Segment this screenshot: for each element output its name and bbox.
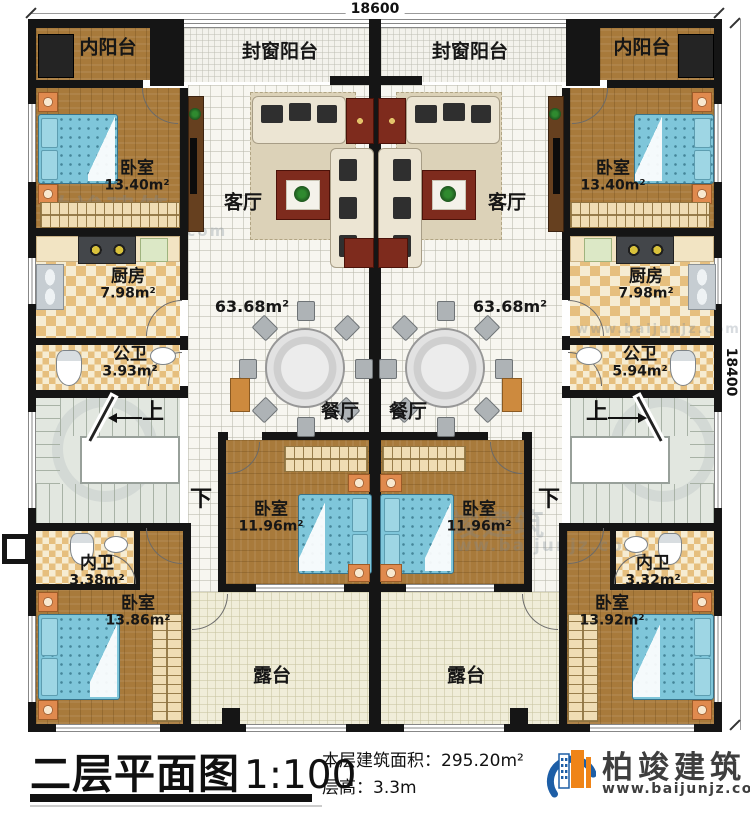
window <box>404 724 504 732</box>
sofa-cushion <box>393 159 411 181</box>
pillow <box>352 498 368 532</box>
kitchen-sink <box>36 264 64 310</box>
chair <box>437 417 455 437</box>
room-label-bedroom-top-right: 卧室 13.40m² <box>580 160 645 195</box>
window <box>246 724 346 732</box>
room-name: 内卫 <box>69 555 124 574</box>
wall-balcony-divider-left <box>150 19 184 86</box>
room-name: 内卫 <box>625 555 680 574</box>
room-label-bedroom-bottom-right: 卧室 13.92m² <box>579 595 644 630</box>
pillow <box>41 618 58 656</box>
wall-niche-left <box>2 534 30 564</box>
brand-url: www.baijunjz.com <box>602 781 750 797</box>
nightstand <box>692 700 712 720</box>
stair-down-label-left: 下 <box>190 481 212 513</box>
window <box>28 104 36 182</box>
nightstand <box>380 564 402 582</box>
room-area: 7.98m² <box>618 287 673 303</box>
stair-up-arrow <box>608 417 638 419</box>
wash-basin <box>624 536 648 553</box>
nightstand <box>692 92 712 112</box>
wash-basin <box>576 347 602 365</box>
room-label-living-left: 客厅 <box>224 192 262 213</box>
chair <box>297 301 315 321</box>
room-name: 卧室 <box>104 160 169 179</box>
nightstand <box>348 564 370 582</box>
wardrobe <box>382 446 466 472</box>
pillar <box>222 708 240 726</box>
pillow <box>694 118 711 148</box>
chair <box>297 417 315 437</box>
wall-bedroom-mid-top-left2 <box>262 432 372 440</box>
title-underline-thin <box>30 805 322 807</box>
stair-up-arrowhead <box>103 413 117 423</box>
plant <box>549 108 561 120</box>
brand-logo-svg <box>538 742 596 800</box>
room-label-bedroom-bottom-left: 卧室 13.86m² <box>105 595 170 630</box>
sofa <box>406 96 500 144</box>
balcony-cabinet <box>678 34 714 78</box>
wall-bedroom-terrace-left <box>183 523 191 730</box>
drawing-info: 本层建筑面积：295.20m² 层高：3.3m <box>322 748 524 802</box>
window <box>28 412 36 508</box>
wall-kitchen-bath-left <box>28 338 188 345</box>
wall-bedroom-terrace-right <box>559 523 567 730</box>
window <box>28 616 36 702</box>
pillow <box>352 534 368 568</box>
room-area: 3.93m² <box>102 365 157 381</box>
sofa-cushion <box>339 159 357 181</box>
brand-logo-icon <box>538 742 596 800</box>
pillow <box>384 534 400 568</box>
stair-up-arrowhead <box>638 413 652 423</box>
floor-height-line: 层高：3.3m <box>322 775 524 802</box>
plant <box>189 108 201 120</box>
chair <box>495 359 513 379</box>
room-label-bath-public-left: 公卫 3.93m² <box>102 346 157 381</box>
window <box>714 412 722 508</box>
room-name: 卧室 <box>579 595 644 614</box>
drawing-title-text: 二层平面图 <box>30 750 240 798</box>
window <box>406 584 494 592</box>
room-label-bedroom-top-left: 卧室 13.40m² <box>104 160 169 195</box>
wall-bedroom-mid-side-right <box>524 432 532 592</box>
stair-steps <box>36 398 60 484</box>
room-label-dining-left: 餐厅 <box>321 401 359 422</box>
sofa <box>252 96 346 144</box>
room-area: 3.38m² <box>69 574 124 590</box>
chair <box>437 301 455 321</box>
plant <box>440 186 456 202</box>
wall-bedroom-living-left <box>180 88 188 230</box>
room-name: 公卫 <box>102 346 157 365</box>
sofa-cushion <box>317 105 337 123</box>
window <box>714 104 722 182</box>
nightstand <box>380 474 402 492</box>
chair <box>355 359 373 379</box>
stair-landing <box>80 436 180 484</box>
sofa-cushion <box>415 105 437 123</box>
side-table-lamp <box>346 98 374 144</box>
wall-balcony-divider-right <box>566 19 600 86</box>
wall-bedroom-mid-side-left <box>218 432 226 592</box>
floor-area-line: 本层建筑面积：295.20m² <box>322 748 524 775</box>
window <box>714 616 722 702</box>
room-area: 13.40m² <box>580 179 645 195</box>
pillow <box>694 150 711 180</box>
dimension-height: 18400 <box>723 343 739 402</box>
wall-balcony-arm <box>330 76 422 85</box>
side-table <box>378 238 408 268</box>
drawing-title: 二层平面图1:100 <box>30 740 356 800</box>
side-table-lamp <box>378 98 406 144</box>
room-label-bath-inner-right: 内卫 3.32m² <box>625 555 680 590</box>
side-table <box>344 238 374 268</box>
window <box>256 584 344 592</box>
toilet <box>56 350 82 386</box>
room-area: 3.32m² <box>625 574 680 590</box>
stair-steps <box>36 484 180 523</box>
room-label-bath-inner-left: 内卫 3.38m² <box>69 555 124 590</box>
room-area-living-left: 63.68m² <box>215 298 289 316</box>
wall-bedroom-kitchen-right <box>562 228 722 236</box>
stair-up-label-right: 上 <box>586 394 608 426</box>
sofa-cushion <box>289 103 311 121</box>
pillow <box>41 658 58 696</box>
stair-steps <box>690 398 714 484</box>
nightstand <box>38 92 58 112</box>
stair-steps <box>570 484 714 523</box>
window <box>28 258 36 304</box>
pillow <box>41 150 58 180</box>
room-area: 7.98m² <box>100 287 155 303</box>
plant <box>294 186 310 202</box>
dimension-width: 18600 <box>346 1 405 17</box>
room-area-living-right: 63.68m² <box>473 298 547 316</box>
wardrobe <box>40 202 180 228</box>
dining-table <box>405 328 485 408</box>
wall-bedroom-kitchen-left <box>28 228 188 236</box>
nightstand <box>692 184 712 204</box>
floor-area-value: 295.20m² <box>441 751 524 771</box>
dimension-tick <box>729 719 740 730</box>
dining-table <box>265 328 345 408</box>
tv <box>553 138 560 194</box>
wardrobe <box>570 202 710 228</box>
wall-balcony-top-right <box>600 19 714 28</box>
toilet <box>670 350 696 386</box>
room-label-balcony-sealed-left: 封窗阳台 <box>242 41 318 62</box>
room-label-bedroom-mid-right: 卧室 11.96m² <box>446 501 511 536</box>
sofa-cushion <box>471 105 491 123</box>
kitchen-sink <box>688 264 716 310</box>
nightstand <box>38 700 58 720</box>
pillow <box>41 118 58 148</box>
room-area: 13.92m² <box>579 614 644 630</box>
wall-kitchen-living-right <box>562 230 570 300</box>
floor-height-label: 层高： <box>322 778 373 798</box>
room-name: 卧室 <box>580 160 645 179</box>
cutting-board <box>584 238 612 262</box>
pillow <box>384 498 400 532</box>
floor-area-label: 本层建筑面积： <box>322 751 441 771</box>
chair <box>379 359 397 379</box>
pillar <box>510 708 528 726</box>
sofa-cushion <box>393 197 411 219</box>
room-label-kitchen-right: 厨房 7.98m² <box>618 268 673 303</box>
wardrobe <box>284 446 368 472</box>
wall-bedroom-mid-top-right2 <box>378 432 488 440</box>
window <box>56 724 160 732</box>
room-name: 卧室 <box>238 501 303 520</box>
window <box>590 724 694 732</box>
room-area: 5.94m² <box>612 365 667 381</box>
room-area: 13.40m² <box>104 179 169 195</box>
nightstand <box>38 184 58 204</box>
room-name: 公卫 <box>612 346 667 365</box>
nightstand <box>692 592 712 612</box>
sofa-cushion <box>443 103 465 121</box>
room-label-balcony-inner-left: 内阳台 <box>79 37 136 58</box>
wardrobe <box>152 614 182 722</box>
room-area: 11.96m² <box>238 520 303 536</box>
balcony-cabinet <box>38 34 74 78</box>
stove <box>78 236 136 264</box>
room-area: 13.86m² <box>105 614 170 630</box>
room-area: 11.96m² <box>446 520 511 536</box>
stair-down-label-right: 下 <box>538 481 560 513</box>
stair-up-label-left: 上 <box>142 394 164 426</box>
stair-landing <box>570 436 670 484</box>
room-name: 卧室 <box>105 595 170 614</box>
nightstand <box>38 592 58 612</box>
tv <box>190 138 197 194</box>
cutting-board <box>140 238 168 262</box>
chair <box>239 359 257 379</box>
room-name: 卧室 <box>446 501 511 520</box>
wall-balcony-bedroom-left <box>36 80 143 88</box>
room-label-balcony-sealed-right: 封窗阳台 <box>432 41 508 62</box>
sideboard <box>502 378 522 412</box>
room-label-terrace-right: 露台 <box>447 665 485 686</box>
sofa-cushion <box>261 105 283 123</box>
room-name: 厨房 <box>618 268 673 287</box>
room-label-dining-right: 餐厅 <box>389 401 427 422</box>
sideboard <box>230 378 250 412</box>
room-label-living-right: 客厅 <box>488 192 526 213</box>
room-label-balcony-inner-right: 内阳台 <box>613 37 670 58</box>
floorplan-canvas: 18600 18400 柏竣建筑 www.baijunjz.com 柏竣建筑 w… <box>0 0 750 813</box>
wall-kitchen-living-left <box>180 230 188 300</box>
room-label-kitchen-left: 厨房 7.98m² <box>100 268 155 303</box>
room-label-bath-public-right: 公卫 5.94m² <box>612 346 667 381</box>
floor-height-value: 3.3m <box>373 778 417 798</box>
nightstand <box>348 474 370 492</box>
wash-basin <box>104 536 128 553</box>
room-name: 厨房 <box>100 268 155 287</box>
sofa-cushion <box>339 197 357 219</box>
title-underline <box>30 794 312 802</box>
dimension-tick <box>729 17 740 28</box>
stove <box>616 236 674 264</box>
wall-balcony-bedroom-right <box>607 80 714 88</box>
dimension-line-right <box>740 19 741 730</box>
wall-balcony-top-left <box>36 19 150 28</box>
pillow <box>694 658 711 696</box>
room-label-bedroom-mid-left: 卧室 11.96m² <box>238 501 303 536</box>
room-label-terrace-left: 露台 <box>253 665 291 686</box>
pillow <box>694 618 711 656</box>
wardrobe <box>568 614 598 722</box>
